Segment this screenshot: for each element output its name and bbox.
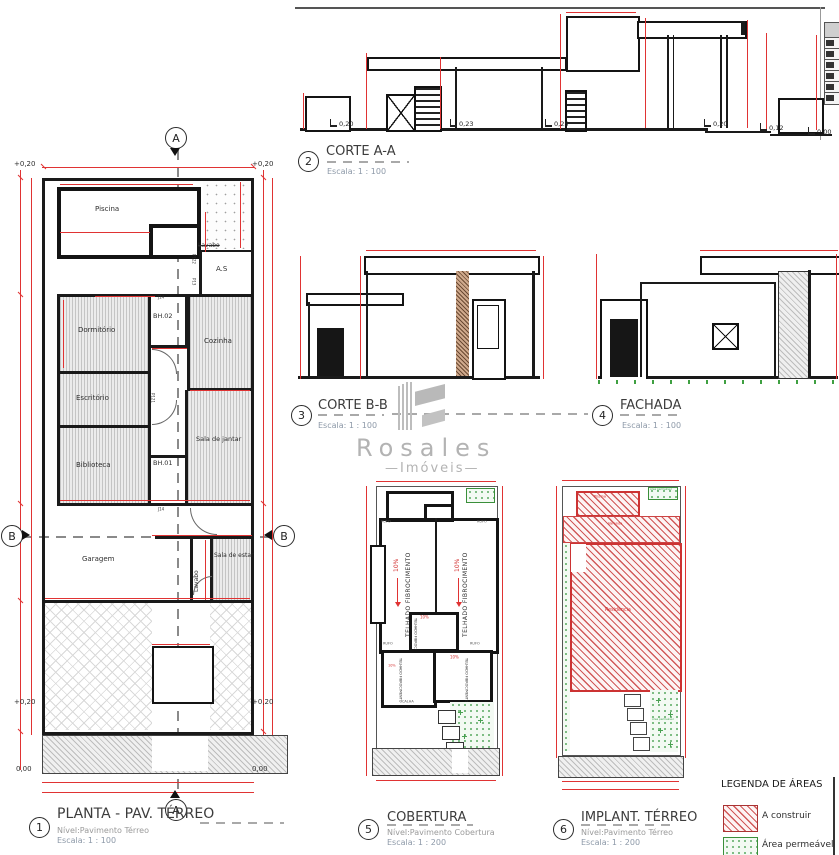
room-label: Lavabo: [198, 243, 220, 249]
slope-label: 10%: [420, 616, 429, 620]
slab-end-cap: [741, 21, 745, 35]
room-label: A.S: [216, 266, 227, 273]
wall: [199, 250, 254, 252]
legend-swatch-construir: [723, 805, 758, 832]
sidewalk: [558, 756, 684, 778]
section-roof-slab: [306, 293, 404, 306]
viewport-scale: Escala: 1 : 200: [387, 838, 446, 847]
wall: [251, 178, 254, 735]
section-parapet-volume: [566, 16, 640, 72]
section-marker-arrow-icon: [170, 790, 180, 798]
section-door-x: [386, 94, 416, 132]
level-marker: 0,25: [545, 118, 568, 128]
room-label: Lavabo: [194, 550, 200, 592]
step-box: [633, 737, 650, 751]
door-tag: P122: [191, 254, 195, 264]
ground-line: [300, 128, 708, 131]
level-text: +0,20: [14, 161, 35, 168]
facade-wall: [640, 282, 642, 377]
viewport-scale: Escala: 1 : 200: [581, 838, 640, 847]
section-marker-b-icon: B: [1, 525, 23, 547]
viewport-scale: Escala: 1 : 100: [57, 836, 116, 845]
wall: [57, 503, 254, 506]
dimension-line: [272, 178, 273, 735]
title-underline: [620, 414, 678, 416]
dimension-line: [747, 20, 748, 128]
schedule-table-fragment: [824, 22, 839, 38]
facade-textured-panel: [778, 271, 810, 379]
viewport-number: 5: [358, 819, 379, 840]
viewport-scale: Escala: 1 : 100: [318, 421, 377, 430]
door-tag: P121: [150, 393, 154, 403]
room-label: Biblioteca: [76, 462, 111, 469]
room-label: Dormitório: [78, 327, 115, 334]
door-swing: [190, 508, 217, 535]
title-underline: [387, 824, 473, 826]
deck-area: [203, 181, 251, 249]
step-box: [627, 708, 644, 721]
rufo-label: RUFO: [381, 520, 391, 524]
dimension-line: [645, 18, 646, 128]
section-marker-a-icon: A: [165, 127, 187, 149]
slope-label: 10%: [394, 552, 400, 572]
permeable-strip: [563, 543, 570, 751]
facade-roof-slab: [700, 256, 839, 275]
dimension-line: [42, 167, 254, 168]
sidewalk: [372, 748, 500, 776]
wall: [148, 455, 188, 458]
title-underline: [327, 161, 409, 163]
slope-arrow-icon: [456, 602, 462, 607]
patio-fill: [45, 603, 152, 730]
watermark-name: Rosales: [356, 436, 496, 461]
section-wall: [667, 35, 669, 128]
door-tag: P13: [191, 278, 195, 285]
door-swing: [152, 400, 177, 425]
facade-wall: [774, 282, 776, 377]
roof-notch: [370, 545, 386, 624]
site-label: Área permeável: [650, 488, 671, 491]
calha-label: CALHA: [402, 700, 414, 704]
section-marker-arrow-icon: [264, 530, 272, 540]
section-wall: [673, 35, 674, 128]
patio-structure: [152, 646, 214, 704]
legend-item-label: Área permeável: [762, 841, 834, 850]
viewport-title: FACHADA: [620, 398, 681, 413]
site-label: Piscina: [594, 495, 606, 499]
driveway-gap: [152, 736, 208, 771]
dimension-line: [566, 12, 636, 13]
site-label: Área permeável: [652, 718, 673, 721]
site-house-notch: [571, 544, 586, 572]
room-label: Garagem: [82, 556, 114, 563]
step-box: [442, 726, 460, 740]
step-box: [624, 694, 641, 707]
section-cut-column: [456, 271, 469, 376]
site-pool-area: [576, 491, 640, 517]
driveway-gap: [452, 749, 468, 773]
section-wall: [541, 67, 543, 128]
dimension-line: [440, 57, 441, 129]
rufo-label: RUFO: [470, 642, 480, 646]
section-marker-arrow-icon: [22, 530, 30, 540]
dimension-line: [560, 14, 561, 129]
level-text: 0,00: [16, 766, 32, 773]
roof-label-small: TELHADO FIBROCIMENTO: [413, 618, 417, 632]
viewport-scale: Escala: 1 : 100: [327, 167, 386, 176]
permeable-patch: [466, 488, 495, 503]
dimension-line: [20, 170, 21, 770]
legend-title: LEGENDA DE ÁREAS: [721, 780, 822, 791]
viewport-title: COBERTURA: [387, 810, 466, 825]
title-underline: [200, 822, 284, 824]
section-window: [477, 305, 499, 349]
section-high-roof-slab: [637, 21, 747, 39]
facade-wall-top: [640, 282, 776, 284]
watermark-tagline: —Imóveis—: [385, 462, 480, 476]
viewport-scale: Escala: 1 : 100: [622, 421, 681, 430]
site-label: Residência: [605, 608, 631, 613]
slope-label: 10%: [450, 656, 459, 660]
dimension-line: [42, 782, 254, 783]
viewport-number: 2: [298, 151, 319, 172]
dimension-line: [816, 35, 817, 130]
door-tag: J14: [158, 508, 164, 512]
room-fill: [188, 391, 251, 503]
dimension-line: [31, 178, 32, 735]
patio-fill: [210, 603, 251, 730]
door-tag: J14: [158, 296, 164, 300]
legend-swatch-permeavel: [723, 837, 758, 855]
level-marker: 0,20: [330, 118, 353, 128]
room-label: Sala de estar: [214, 553, 253, 559]
room-label: Cozinha: [204, 338, 232, 345]
facade-door: [610, 319, 638, 377]
grass-marks: [598, 380, 838, 384]
slope-label: 10%: [388, 664, 396, 668]
room-label: Escritório: [76, 395, 109, 402]
level-marker: 0,12: [760, 122, 783, 132]
level-marker: 0,23: [450, 118, 473, 128]
pool-notch: [149, 224, 197, 255]
facade-column: [808, 270, 811, 378]
step-box: [630, 722, 647, 735]
site-label: Varanda: [608, 522, 622, 526]
site-house-area: [570, 543, 682, 692]
sheet-top-line: [295, 7, 825, 9]
viewport-number: 3: [291, 405, 312, 426]
rufo-label: RUFO: [383, 642, 393, 646]
roof-pool-notch: [424, 504, 451, 519]
section-marker-b-icon: B: [273, 525, 295, 547]
room-label: Piscina: [95, 206, 119, 213]
room-label: BH.02: [153, 313, 173, 320]
viewport-level: Nível:Pavimento Cobertura: [387, 828, 495, 837]
level-text: +0,20: [252, 699, 273, 706]
facade-window-x: [712, 323, 739, 350]
rosales-logo-icon: [398, 382, 468, 434]
drawing-sheet: 0,20 0,23 0,25 0,20 0,12 0,00 2 CORTE A-…: [0, 0, 839, 855]
section-door: [317, 328, 344, 376]
door-swing: [152, 349, 177, 374]
level-marker: 0,20: [704, 118, 727, 128]
schedule-row: [824, 92, 839, 105]
viewport-title: PLANTA - PAV. TÉRREO: [57, 806, 214, 822]
roof-label-small: TELHADO FIBROCIMENTO: [464, 658, 468, 678]
viewport-number: 1: [29, 817, 50, 838]
viewport-level: Nível:Pavimento Térreo: [581, 828, 673, 837]
section-wall: [308, 302, 310, 376]
dimension-line: [263, 170, 264, 770]
room-label: Sala de jantar: [196, 436, 241, 443]
level-text: +0,20: [252, 161, 273, 168]
slope-arrow-icon: [395, 602, 401, 607]
section-wall: [532, 271, 535, 376]
roof-label: TELHADO FIBROCIMENTO: [463, 533, 469, 637]
dimension-line: [766, 33, 767, 129]
viewport-number: 6: [553, 819, 574, 840]
level-text: 0,00: [252, 766, 268, 773]
viewport-level: Nível:Pavimento Térreo: [57, 826, 149, 835]
section-roof-slab: [364, 256, 540, 275]
dimension-line: [303, 93, 304, 129]
room-label: BH.01: [153, 460, 173, 467]
viewport-title: IMPLANT. TÉRREO: [581, 810, 697, 825]
title-underline: [581, 824, 677, 826]
rufo-label: RUFO: [477, 520, 487, 524]
slope-label: 10%: [455, 552, 461, 572]
section-roof-slab: [367, 57, 567, 71]
dimension-line: [42, 792, 254, 793]
roof-lower-room: [433, 650, 493, 703]
section-wall: [720, 35, 722, 128]
section-wall: [726, 35, 728, 128]
permeable-area: [650, 690, 678, 752]
dimension-line: [366, 53, 367, 129]
section-marker-arrow-icon: [170, 148, 180, 156]
section-stairs: [414, 86, 442, 132]
level-text: +0,20: [14, 699, 35, 706]
roof-label-small: TELHADO FIBROCIMENTO: [398, 658, 402, 679]
title-underline: [318, 414, 384, 416]
step-box: [438, 710, 456, 724]
legend-item-label: A construir: [762, 812, 811, 821]
level-marker: 0,00: [808, 126, 831, 136]
viewport-title: CORTE B-B: [318, 398, 388, 413]
viewport-title: CORTE A-A: [326, 144, 396, 159]
section-wall: [366, 271, 368, 376]
site-varanda-area: [563, 516, 680, 543]
room-fill: [213, 539, 251, 600]
viewport-number: 4: [592, 405, 613, 426]
